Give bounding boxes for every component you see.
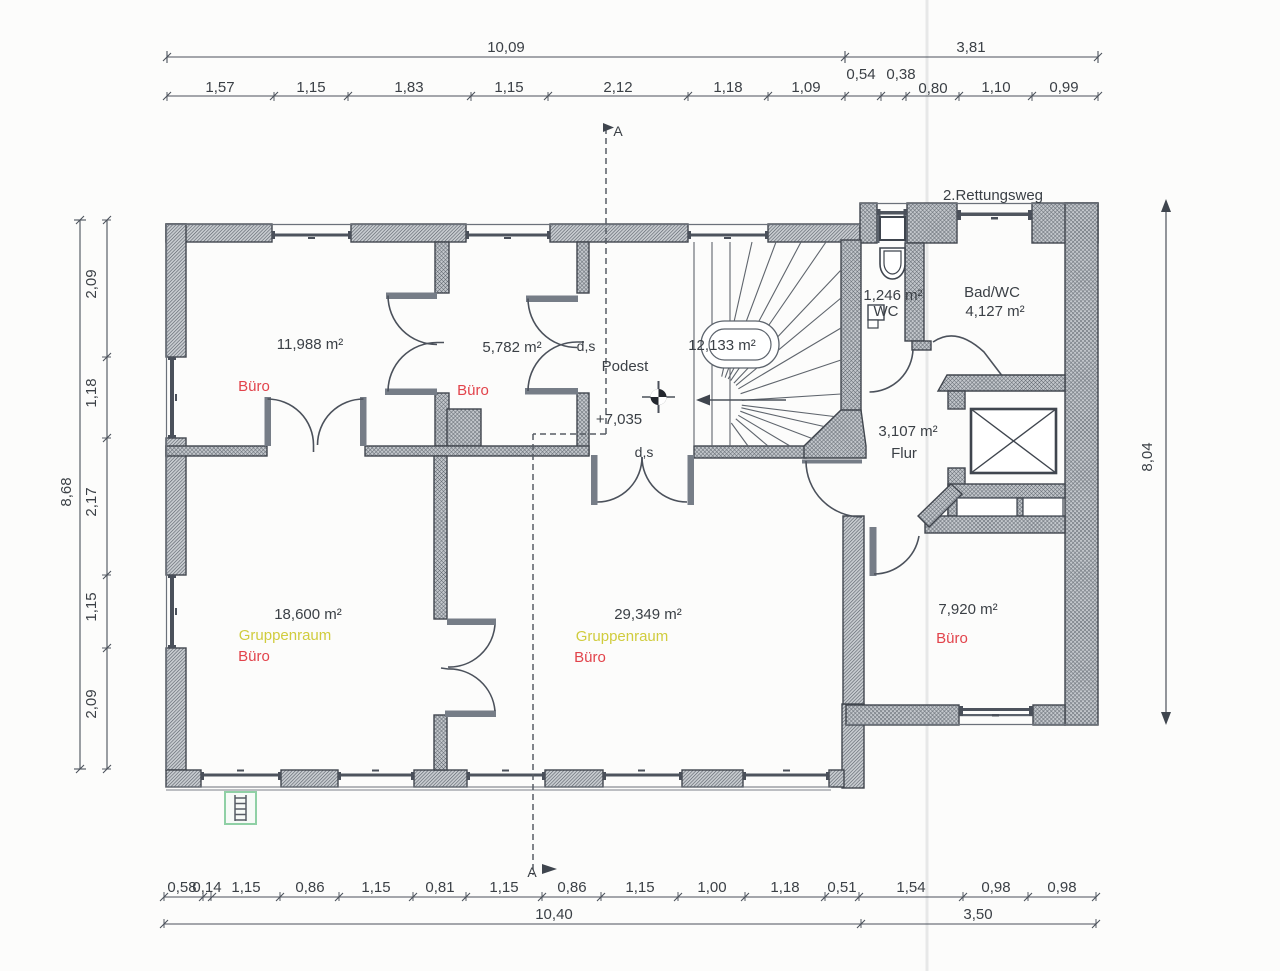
svg-text:3,50: 3,50: [963, 906, 992, 923]
svg-text:d,s: d,s: [577, 338, 596, 354]
svg-text:1,18: 1,18: [713, 79, 742, 96]
svg-text:Flur: Flur: [891, 445, 917, 462]
svg-text:29,349 m²: 29,349 m²: [614, 606, 682, 623]
svg-text:2.Rettungsweg: 2.Rettungsweg: [943, 187, 1043, 204]
svg-text:1,15: 1,15: [494, 79, 523, 96]
svg-text:1,54: 1,54: [896, 879, 925, 896]
svg-text:1,09: 1,09: [791, 79, 820, 96]
svg-text:1,83: 1,83: [394, 79, 423, 96]
svg-text:0,98: 0,98: [981, 879, 1010, 896]
svg-text:1,246 m²: 1,246 m²: [863, 287, 922, 304]
svg-text:0,99: 0,99: [1049, 79, 1078, 96]
svg-text:7,920 m²: 7,920 m²: [938, 601, 997, 618]
svg-text:3,81: 3,81: [956, 39, 985, 56]
svg-text:1,10: 1,10: [981, 79, 1010, 96]
svg-text:2,09: 2,09: [83, 269, 100, 298]
svg-text:1,18: 1,18: [83, 378, 100, 407]
svg-text:+7,035: +7,035: [596, 411, 642, 428]
svg-text:0,98: 0,98: [1047, 879, 1076, 896]
svg-text:1,18: 1,18: [770, 879, 799, 896]
svg-text:1,15: 1,15: [489, 879, 518, 896]
svg-text:4,127 m²: 4,127 m²: [965, 303, 1024, 320]
svg-text:2,09: 2,09: [83, 689, 100, 718]
svg-text:A: A: [613, 123, 623, 139]
svg-text:0,80: 0,80: [918, 80, 947, 97]
svg-text:Gruppenraum: Gruppenraum: [576, 628, 669, 645]
svg-text:Bad/WC: Bad/WC: [964, 284, 1020, 301]
svg-text:3,107 m²: 3,107 m²: [878, 423, 937, 440]
svg-text:12,133 m²: 12,133 m²: [688, 337, 756, 354]
svg-text:2,17: 2,17: [83, 487, 100, 516]
svg-text:2,12: 2,12: [603, 79, 632, 96]
svg-text:Podest: Podest: [602, 358, 650, 375]
svg-text:1,15: 1,15: [83, 592, 100, 621]
svg-text:Büro: Büro: [574, 649, 606, 666]
svg-text:d,s: d,s: [635, 444, 654, 460]
svg-text:0,81: 0,81: [425, 879, 454, 896]
svg-text:Büro: Büro: [936, 630, 968, 647]
svg-text:0,14: 0,14: [192, 879, 221, 896]
svg-text:8,04: 8,04: [1139, 442, 1156, 471]
svg-text:A: A: [527, 864, 537, 880]
svg-text:1,15: 1,15: [361, 879, 390, 896]
svg-text:1,15: 1,15: [296, 79, 325, 96]
svg-text:0,51: 0,51: [827, 879, 856, 896]
svg-text:1,15: 1,15: [625, 879, 654, 896]
svg-text:0,38: 0,38: [886, 66, 915, 83]
svg-text:10,09: 10,09: [487, 39, 525, 56]
svg-text:10,40: 10,40: [535, 906, 573, 923]
svg-text:Büro: Büro: [238, 648, 270, 665]
svg-text:Büro: Büro: [457, 382, 489, 399]
svg-text:0,54: 0,54: [846, 66, 875, 83]
svg-text:1,15: 1,15: [231, 879, 260, 896]
svg-text:18,600 m²: 18,600 m²: [274, 606, 342, 623]
svg-text:1,00: 1,00: [697, 879, 726, 896]
svg-text:0,86: 0,86: [557, 879, 586, 896]
svg-text:Büro: Büro: [238, 378, 270, 395]
svg-text:8,68: 8,68: [58, 477, 75, 506]
svg-text:11,988 m²: 11,988 m²: [277, 336, 343, 353]
svg-text:WC: WC: [874, 303, 899, 320]
svg-text:0,86: 0,86: [295, 879, 324, 896]
svg-text:Gruppenraum: Gruppenraum: [239, 627, 332, 644]
svg-text:1,57: 1,57: [205, 79, 234, 96]
svg-text:5,782 m²: 5,782 m²: [482, 339, 541, 356]
